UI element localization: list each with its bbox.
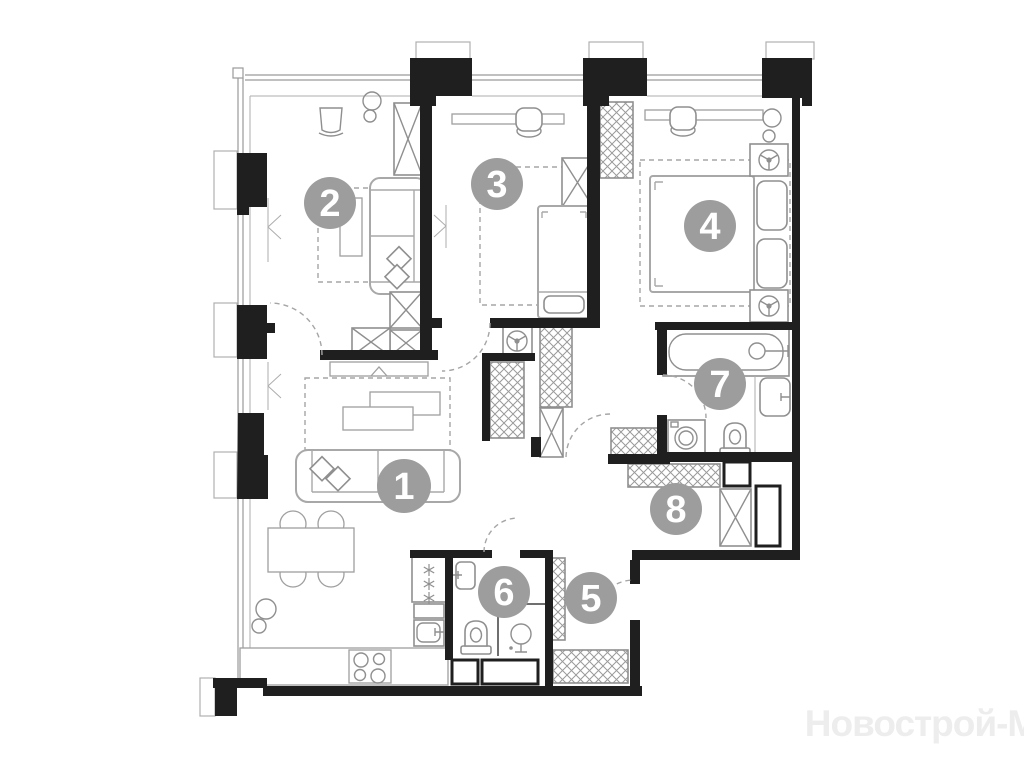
single-bed [538,206,590,318]
wardrobe-icon [720,489,751,546]
dining-table [268,528,354,572]
wc-sink [452,562,475,589]
wall [520,550,547,558]
wall [445,550,453,660]
watermark: Новострой-М [805,703,1024,744]
pilaster-cap [214,151,237,209]
desk [645,110,763,120]
room-badge-4: 4 [684,200,736,252]
coat-rack [552,558,565,640]
room-badge-5: 5 [565,572,617,624]
plant [252,619,266,633]
room-badge-2: 2 [304,177,356,229]
wall [655,322,800,330]
plant [363,92,381,110]
door-arc-room6 [484,518,518,552]
door-arc-room2 [270,303,322,355]
tall-cabinet [756,486,780,546]
svg-text:6: 6 [493,572,514,614]
room-3-furniture [452,108,593,318]
pilaster [762,58,812,106]
bottom-wall [213,678,267,688]
wall [630,560,640,584]
desk-chair [670,107,696,136]
toilet [461,621,491,654]
toilet [720,423,750,456]
wall [630,620,640,692]
wall [490,318,600,328]
wardrobe-icon [352,292,422,356]
wardrobe-icon [540,327,572,407]
pilaster-cap [214,303,237,357]
svg-text:5: 5 [580,578,601,620]
window-opening-mark [268,362,281,410]
shoe-cabinet [611,428,661,455]
wall [657,415,667,455]
window-opening-mark [434,205,446,248]
shower [509,624,531,652]
pilaster [410,58,472,106]
washing-machine [668,420,705,457]
bottom-wall [263,686,642,696]
svg-text:4: 4 [699,206,720,248]
nightstand [750,144,788,176]
pilaster-cap [214,452,237,498]
plant [763,130,775,142]
wardrobe-icon [394,103,422,175]
wall [320,350,438,360]
wall [490,353,535,361]
wall [545,550,553,690]
plant [763,109,781,127]
pillow [757,181,787,230]
shaft-box [482,660,538,684]
svg-text:7: 7 [709,364,730,406]
pillow [544,296,584,313]
plant [256,599,276,619]
floor-plan-page: 1 2 3 4 5 6 7 8 Новострой [0,0,1024,768]
desk [452,114,564,124]
door-arc-hallway8 [566,414,610,458]
plant [364,110,376,122]
nightstand [750,290,788,322]
bathroom-sink [760,378,790,416]
pillow [757,239,787,288]
wall [587,96,600,322]
wall [632,550,800,560]
oven [414,604,444,618]
floor-plan-drawing: 1 2 3 4 5 6 7 8 Новострой [0,0,1024,768]
sofa [296,450,460,502]
plant-pot [319,108,343,136]
wall [410,550,447,558]
pilaster [237,305,275,359]
wall [608,454,670,464]
wall [531,437,541,457]
wardrobe-icon [540,408,563,457]
wardrobe-icon [490,362,524,438]
room-badge-7: 7 [694,358,746,410]
tv-console [330,362,428,376]
shaft-box [452,660,478,684]
wall [432,318,442,328]
pilaster-cap [766,42,814,59]
desk-chair [516,108,542,137]
corner-post [233,68,243,78]
wall [420,96,432,356]
kitchen-counter [240,648,448,685]
wardrobe-icon [600,102,633,178]
pilaster-cap [589,42,643,59]
pilaster-cap [416,42,470,59]
svg-text:3: 3 [486,164,507,206]
room-badge-3: 3 [471,158,523,210]
pilaster [237,413,268,499]
shaft-box [724,462,750,486]
wardrobe-icon [553,650,628,683]
svg-text:8: 8 [665,489,686,531]
wall [447,550,492,558]
svg-text:2: 2 [319,183,340,225]
kitchen-column [412,556,446,646]
room-badge-1: 1 [377,459,431,513]
room-badge-6: 6 [478,566,530,618]
pilaster [237,153,267,215]
svg-text:1: 1 [393,466,414,508]
pilaster-cap [200,678,215,716]
coffee-table [343,407,413,430]
wall [657,322,667,375]
room-badge-8: 8 [650,483,702,535]
dining-set [268,511,354,587]
wall [482,353,490,441]
window-opening-mark [268,198,281,262]
room-1-furniture [240,362,460,685]
sofa [370,178,426,294]
